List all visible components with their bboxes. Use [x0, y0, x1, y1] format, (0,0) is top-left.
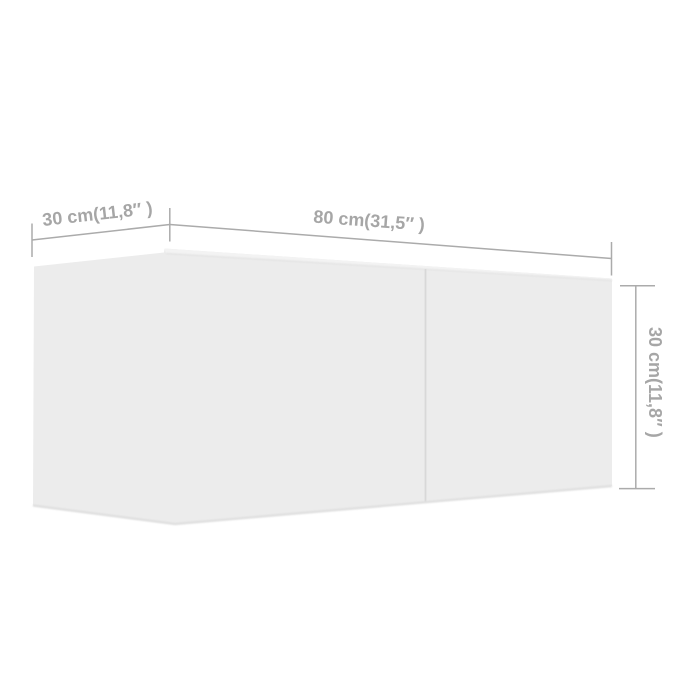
- svg-text:30 cm(11,8″ ): 30 cm(11,8″ ): [645, 327, 665, 438]
